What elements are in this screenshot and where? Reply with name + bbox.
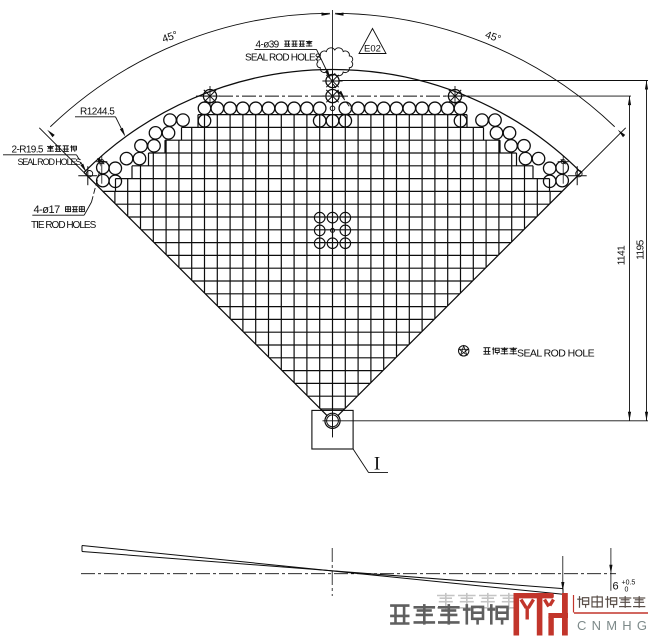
svg-text:I: I (374, 454, 380, 475)
svg-text:0: 0 (625, 587, 629, 594)
svg-text:TIE ROD HOLES: TIE ROD HOLES (31, 220, 97, 231)
svg-text:1141: 1141 (617, 245, 628, 265)
svg-text:+0.5: +0.5 (622, 580, 636, 587)
svg-text:2-R19.5: 2-R19.5 (12, 145, 44, 156)
svg-text:6: 6 (613, 580, 619, 592)
svg-text:E02: E02 (364, 44, 381, 55)
svg-text:4-ø39: 4-ø39 (256, 40, 280, 51)
svg-text:SEAL ROD HOLES: SEAL ROD HOLES (18, 157, 82, 167)
svg-text:4-ø17: 4-ø17 (34, 204, 61, 216)
svg-text:SEAL ROD HOLE: SEAL ROD HOLE (517, 348, 595, 360)
svg-text:R1244.5: R1244.5 (80, 107, 115, 118)
svg-text:1195: 1195 (636, 239, 647, 259)
svg-text:SEAL ROD HOLES: SEAL ROD HOLES (245, 53, 322, 64)
svg-text:C N M H G: C N M H G (577, 618, 648, 633)
